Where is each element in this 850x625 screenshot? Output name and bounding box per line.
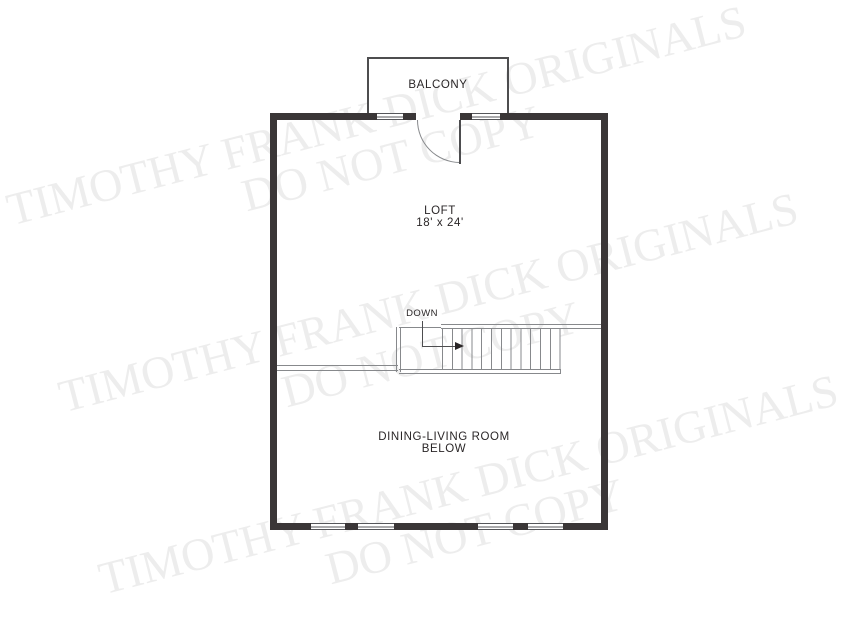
wall-top-segment-4	[500, 113, 608, 120]
window-bottom-3	[478, 523, 513, 530]
wall-top-segment-1	[270, 113, 377, 120]
dining-living-room-line1: DINING-LIVING ROOM	[374, 432, 514, 444]
stair-railing	[277, 365, 398, 371]
wall-top-segment-3	[460, 113, 472, 120]
wall-left	[270, 113, 277, 530]
wall-right	[601, 113, 608, 530]
dining-living-room-line2: BELOW	[374, 444, 514, 456]
balcony-label: BALCONY	[367, 80, 509, 92]
dining-living-room-label: DINING-LIVING ROOM BELOW	[374, 432, 514, 455]
wall-bottom-segment-3	[394, 523, 478, 530]
down-leader-line-vertical	[422, 321, 423, 347]
wall-bottom-segment-1	[270, 523, 311, 530]
window-bottom-4	[528, 523, 563, 530]
wall-bottom-segment-5	[563, 523, 608, 530]
stair-left-edge	[396, 327, 401, 372]
down-leader-line-horizontal	[422, 346, 456, 347]
stair-bottom-edge	[399, 369, 561, 374]
floorplan-canvas: TIMOTHY FRANK DICK ORIGINALS DO NOT COPY…	[0, 0, 850, 625]
wall-top-segment-2	[403, 113, 416, 120]
door-leaf	[459, 120, 461, 164]
stair-down-label: DOWN	[400, 309, 444, 319]
loft-room-dimensions: 18' x 24'	[388, 218, 492, 230]
down-direction-arrow-icon	[455, 342, 464, 350]
window-top-right	[472, 113, 500, 120]
wall-bottom-segment-2	[345, 523, 358, 530]
window-bottom-2	[358, 523, 394, 530]
wall-bottom-segment-4	[513, 523, 528, 530]
stair-top-edge-left	[399, 327, 441, 328]
door-swing-arc	[417, 120, 460, 163]
loft-room-name: LOFT	[388, 206, 492, 218]
loft-label: LOFT 18' x 24'	[388, 206, 492, 229]
window-top-left	[377, 113, 403, 120]
window-bottom-1	[311, 523, 345, 530]
